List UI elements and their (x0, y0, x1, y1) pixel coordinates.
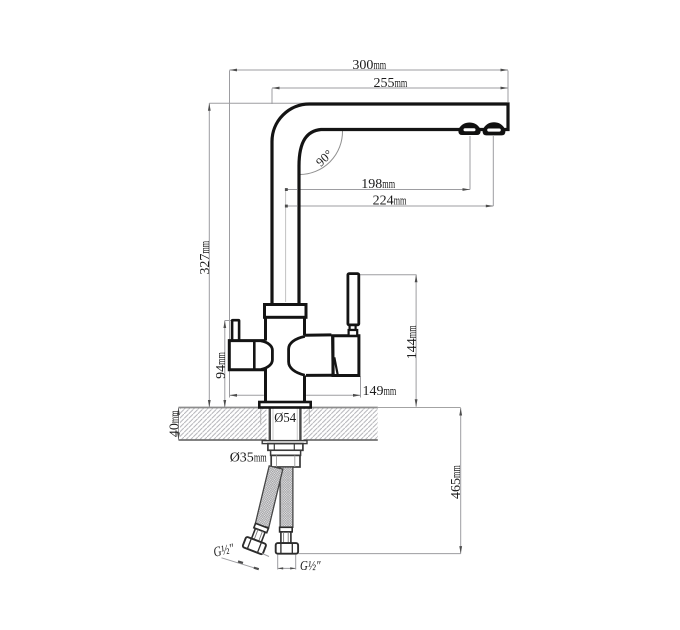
svg-text:224mm: 224mm (373, 194, 407, 209)
svg-text:327mm: 327mm (198, 241, 213, 275)
svg-text:144mm: 144mm (405, 325, 420, 359)
svg-text:198mm: 198mm (361, 177, 395, 192)
svg-text:40mm: 40mm (167, 410, 182, 437)
svg-text:465mm: 465mm (449, 465, 464, 499)
svg-text:300mm: 300mm (352, 58, 386, 73)
svg-text:255mm: 255mm (374, 76, 408, 91)
svg-text:149mm: 149mm (363, 384, 397, 399)
svg-text:94mm: 94mm (214, 352, 229, 379)
svg-text:G½″: G½″ (300, 559, 321, 574)
svg-text:Ø54: Ø54 (274, 411, 296, 426)
svg-text:Ø35mm: Ø35mm (230, 451, 267, 466)
